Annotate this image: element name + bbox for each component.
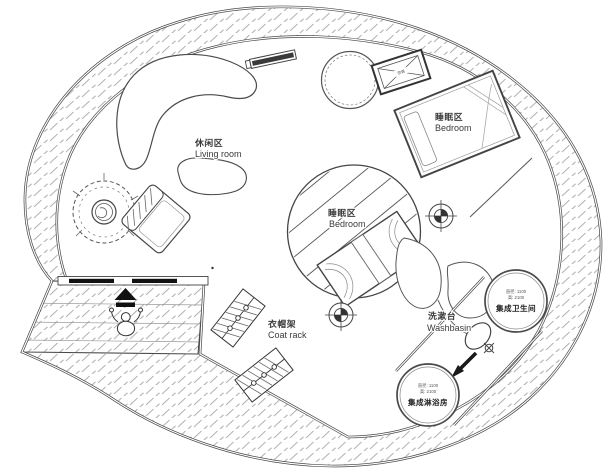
coat-rack-label: 衣帽架 Coat rack: [268, 318, 307, 340]
toilet-spec-height: 高: 2100: [508, 294, 525, 301]
shower-pod: 直径: 1100 高: 2100 集成淋浴房: [397, 364, 459, 426]
bedroom-upper-label-en: Bedroom: [435, 123, 472, 133]
washbasin-label-en: Washbasin: [427, 323, 471, 333]
bedroom-upper-label-zh: 睡眠区: [435, 111, 463, 122]
reference-dot: [211, 267, 213, 269]
coat-rack-label-zh: 衣帽架: [268, 318, 296, 329]
shower-pod-label: 集成淋浴房: [407, 397, 448, 407]
sliding-door-icon: [58, 277, 208, 286]
lounge-chair-icon: [119, 183, 192, 255]
coat-rack-label-en: Coat rack: [268, 330, 307, 340]
ac-crossed-box-icon: 空调: [372, 50, 431, 95]
living-room-label: 休闲区 Living room: [194, 137, 242, 159]
shower-spec-height: 高: 2100: [420, 388, 437, 395]
living-room-label-en: Living room: [195, 149, 242, 159]
floor-plan-canvas: 空调: [0, 0, 611, 473]
living-room-label-zh: 休闲区: [194, 137, 223, 148]
direction-arrow-icon: [451, 353, 476, 378]
bedroom-center-label-en: Bedroom: [329, 219, 366, 229]
partition-line: [470, 158, 532, 217]
toilet-spec-diameter: 直径: 1100: [506, 288, 527, 294]
window-strip-icon: [245, 50, 296, 69]
survey-marker-icon: [325, 299, 357, 331]
toilet-pod: 直径: 1100 高: 2100 集成卫生间: [485, 270, 547, 332]
shower-spec-diameter: 直径: 1100: [418, 382, 439, 388]
bedroom-center-label-zh: 睡眠区: [328, 207, 356, 218]
survey-marker-icon: [425, 200, 457, 232]
kidney-table-icon: [178, 158, 247, 195]
coat-rack-icon: [211, 289, 265, 347]
round-table-icon: [322, 52, 379, 109]
potted-plant-icon: [73, 173, 138, 243]
toilet-pod-label: 集成卫生间: [495, 303, 536, 313]
washbasin-label-zh: 洗漱台: [428, 310, 456, 321]
